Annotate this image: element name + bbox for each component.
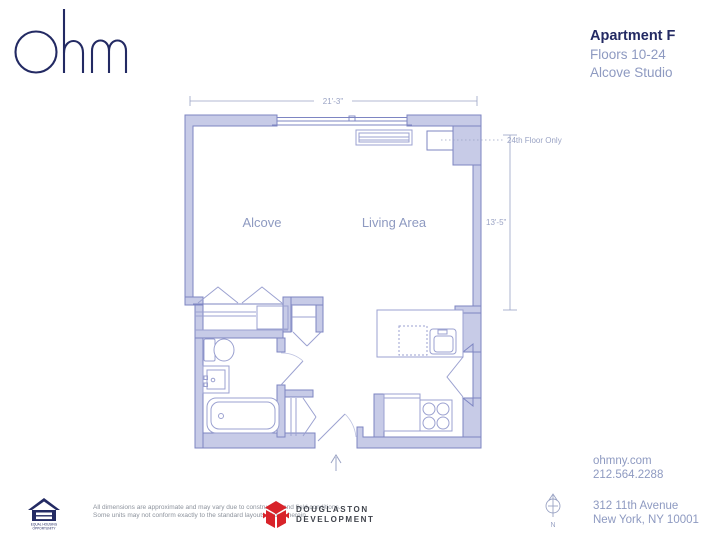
address-line-1: 312 11th Avenue [593,499,717,513]
entry-closet [291,398,316,436]
contact-block: ohmny.com 212.564.2288 312 11th Avenue N… [593,454,717,527]
bathroom-sink-icon [203,366,229,393]
compass-label: N [550,522,555,529]
floorplan-sheet: Apartment F Floors 10-24 Alcove Studio [0,0,720,540]
bathtub-icon [207,398,279,433]
equal-housing-icon: EQUAL HOUSING OPPORTUNITY [27,497,61,531]
alcove-closet [193,287,288,330]
apartment-unit-type: Alcove Studio [590,64,716,83]
phone: 212.564.2288 [593,468,717,482]
ohm-logo [14,6,128,78]
height-dimension: 13'-5" [486,135,517,310]
stove-icon [420,400,452,431]
apartment-title: Apartment F [590,27,716,46]
apartment-header: Apartment F Floors 10-24 Alcove Studio [590,27,716,83]
entry-door [318,414,356,441]
width-dimension: 21'-3" [190,96,477,106]
width-dimension-label: 21'-3" [323,97,344,106]
fridge-icon [384,394,420,431]
compass-icon: N [546,494,560,529]
website: ohmny.com [593,454,717,468]
24th-floor-closet [427,131,453,150]
heater-unit-icon [356,130,412,145]
douglaston-logo-icon [263,500,289,530]
toilet-icon [204,339,234,361]
equal-housing-label-2: OPPORTUNITY [33,527,57,531]
address-line-2: New York, NY 10001 [593,513,717,527]
bathroom-door [281,353,303,385]
room-label-living-area: Living Area [362,215,427,230]
room-label-alcove: Alcove [242,215,281,230]
floor-plan: 21'-3" 13'-5" 24th Floor Only Alcove Liv… [170,85,600,540]
kitchen-sink-icon [430,329,456,354]
developer-name-line-2: DEVELOPMENT [296,515,375,526]
entry-arrow-icon [331,455,341,471]
developer-name-line-1: DOUGLASTON [296,505,375,516]
window [272,116,412,125]
pantry-door [447,357,463,397]
height-dimension-label: 13'-5" [486,218,507,227]
developer-name: DOUGLASTON DEVELOPMENT [296,505,375,526]
apartment-floors: Floors 10-24 [590,46,716,65]
developer-logo: DOUGLASTON DEVELOPMENT [263,500,375,530]
floor-callout-label: 24th Floor Only [507,136,562,145]
